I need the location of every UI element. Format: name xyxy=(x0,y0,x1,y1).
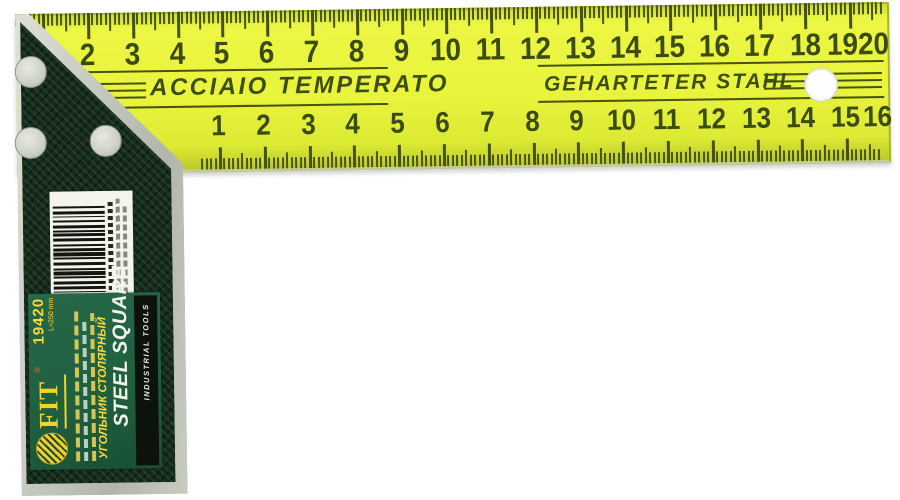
ruler-tick xyxy=(302,10,304,22)
ruler-tick xyxy=(313,157,315,168)
ruler-tick xyxy=(374,9,376,21)
ruler-tick xyxy=(701,5,703,17)
ruler-tick xyxy=(542,154,544,165)
ruler-tick xyxy=(463,8,465,20)
ruler-tick xyxy=(421,150,423,166)
blade-text-german: GEHARTETER STAHL xyxy=(544,69,795,96)
ruler-tick xyxy=(291,157,293,168)
scale-number: 9 xyxy=(393,33,409,69)
ruler-tick xyxy=(226,11,228,23)
ruler-tick xyxy=(510,149,512,165)
barcode xyxy=(53,204,106,297)
ruler-tick xyxy=(799,3,801,15)
ruler-tick xyxy=(304,157,306,168)
ruler-tick xyxy=(573,153,575,164)
ruler-tick xyxy=(280,10,282,22)
ruler-tick xyxy=(644,147,646,163)
ruler-tick xyxy=(257,11,259,23)
ruler-tick xyxy=(506,154,508,165)
ruler-tick xyxy=(358,156,360,167)
ruler-tick xyxy=(380,156,382,167)
ruler-tick xyxy=(324,10,326,22)
ruler-tick xyxy=(629,6,631,18)
ruler-tick xyxy=(647,5,649,23)
ruler-tick xyxy=(651,5,653,17)
ruler-tick xyxy=(763,4,765,16)
ruler-tick xyxy=(407,156,409,167)
sku-number: 19420 xyxy=(30,298,48,345)
ruler-tick xyxy=(181,12,183,24)
ruler-tick xyxy=(857,2,859,14)
ruler-tick xyxy=(607,6,609,18)
ruler-tick xyxy=(262,11,264,23)
scale-number: 11 xyxy=(476,31,506,67)
ruler-tick xyxy=(318,157,320,168)
ruler-tick xyxy=(436,8,438,20)
ruler-tick xyxy=(866,2,868,14)
ruler-tick xyxy=(817,3,819,15)
ruler-tick xyxy=(555,149,557,165)
ruler-tick xyxy=(783,150,785,161)
ruler-tick xyxy=(501,154,503,165)
ruler-tick xyxy=(293,10,295,22)
ruler-tick xyxy=(860,149,862,160)
ruler-tick xyxy=(696,5,698,17)
ruler-tick xyxy=(840,3,842,15)
ruler-tick xyxy=(868,144,870,160)
ruler-tick xyxy=(810,150,812,161)
steel-square-tool: ACCIAIO TEMPERATO GEHARTETER STAHL 23456… xyxy=(15,2,894,496)
ruler-tick xyxy=(248,11,250,23)
ruler-tick xyxy=(683,5,685,17)
ruler-tick xyxy=(595,153,597,164)
ruler-tick xyxy=(819,150,821,161)
product-name-english: STEEL SQUARE xyxy=(108,265,133,427)
ruler-tick xyxy=(508,7,510,19)
ruler-tick xyxy=(295,157,297,168)
ruler-tick xyxy=(719,4,721,16)
ruler-tick xyxy=(743,151,745,162)
ruler-tick xyxy=(450,8,452,20)
ruler-tick xyxy=(239,11,241,23)
ruler-tick xyxy=(564,153,566,164)
scale-number: 9 xyxy=(569,105,584,138)
ruler-tick xyxy=(833,150,835,161)
ruler-tick xyxy=(703,152,705,163)
ruler-tick xyxy=(342,10,344,22)
ruler-tick xyxy=(667,141,670,163)
ruler-tick xyxy=(862,2,864,14)
label-fine-print xyxy=(74,311,80,461)
scale-number: 12 xyxy=(520,31,552,67)
ruler-tick xyxy=(389,156,391,167)
ruler-tick xyxy=(499,7,501,19)
ruler-tick xyxy=(822,3,824,15)
ruler-tick xyxy=(351,9,353,21)
scale-number: 15 xyxy=(654,29,686,65)
ruler-tick xyxy=(434,155,436,166)
ruler-tick xyxy=(568,153,570,164)
ruler-tick xyxy=(721,151,723,162)
ruler-tick xyxy=(835,3,837,15)
ruler-tick xyxy=(228,158,230,169)
ruler-tick xyxy=(875,2,877,14)
ruler-tick xyxy=(678,5,680,17)
ruler-tick xyxy=(566,6,568,18)
ruler-tick xyxy=(356,9,359,35)
ruler-tick xyxy=(481,8,483,20)
ruler-tick xyxy=(362,156,364,167)
ruler-tick xyxy=(416,156,418,167)
ruler-tick xyxy=(842,150,844,161)
ruler-tick xyxy=(824,145,826,161)
scale-number: 5 xyxy=(214,35,230,71)
ruler-tick xyxy=(479,155,481,166)
ruler-tick xyxy=(725,151,727,162)
scale-number: 7 xyxy=(480,106,495,139)
ruler-tick xyxy=(781,3,783,21)
scale-number: 4 xyxy=(345,108,360,141)
ruler-tick xyxy=(524,154,526,165)
ruler-tick xyxy=(553,7,555,19)
ruler-tick xyxy=(414,9,416,21)
ruler-tick xyxy=(443,144,446,166)
ruler-tick xyxy=(745,4,747,16)
ruler-tick xyxy=(250,158,252,169)
blade-text-italian: ACCIAIO TEMPERATO xyxy=(150,70,449,102)
ruler-tick xyxy=(636,152,638,163)
ruler-tick xyxy=(235,11,237,23)
brand-name: FIT xyxy=(33,381,64,429)
ruler-tick xyxy=(649,152,651,163)
label-fine-print xyxy=(82,321,88,461)
ruler-tick xyxy=(631,153,633,164)
ruler-tick xyxy=(611,6,613,18)
scale-number: 7 xyxy=(304,34,320,70)
ruler-tick xyxy=(271,11,273,23)
ruler-tick xyxy=(613,153,615,164)
ruler-tick xyxy=(855,149,857,160)
ruler-tick xyxy=(237,158,239,169)
ruler-tick xyxy=(418,8,420,20)
ruler-tick xyxy=(642,5,644,17)
ruler-tick xyxy=(230,11,232,23)
ruler-tick xyxy=(828,150,830,161)
ruler-tick xyxy=(768,4,770,16)
ruler-tick xyxy=(329,10,331,22)
scale-number: 10 xyxy=(430,32,462,68)
ruler-tick xyxy=(412,156,414,167)
ruler-tick xyxy=(201,159,203,170)
ruler-tick xyxy=(705,4,707,16)
ruler-tick xyxy=(777,3,779,15)
ruler-tick xyxy=(320,10,322,22)
brand-underline xyxy=(64,374,67,428)
fit-logo-icon xyxy=(36,432,68,464)
ruler-tick xyxy=(710,4,712,16)
ruler-tick xyxy=(748,151,750,162)
ruler-tick xyxy=(409,9,411,21)
ruler-tick xyxy=(438,155,440,166)
ruler-tick xyxy=(609,153,611,164)
scale-number: 12 xyxy=(697,103,726,136)
ruler-tick xyxy=(221,11,224,37)
ruler-tick xyxy=(338,10,340,22)
scale-number: 16 xyxy=(699,28,731,64)
ruler-tick xyxy=(403,156,405,167)
ruler-tick xyxy=(223,158,225,169)
ruler-tick xyxy=(452,155,454,166)
scale-number: 8 xyxy=(525,106,540,139)
ruler-tick xyxy=(232,158,234,169)
ruler-tick xyxy=(327,157,329,168)
ruler-tick xyxy=(210,158,212,169)
ruler-tick xyxy=(815,150,817,161)
ruler-tick xyxy=(284,10,286,22)
ruler-tick xyxy=(620,6,622,18)
ruler-tick xyxy=(734,146,736,162)
ruler-tick xyxy=(736,4,738,22)
ruler-tick xyxy=(559,154,561,165)
ruler-tick xyxy=(259,158,261,169)
ruler-tick xyxy=(732,4,734,16)
ruler-tick xyxy=(871,2,873,20)
ruler-tick xyxy=(539,7,541,19)
ruler-tick xyxy=(640,152,642,163)
ruler-tick xyxy=(741,4,743,16)
ruler-tick xyxy=(846,139,849,161)
handle: FIT ® 19420 L=250 mm УГОЛЬНИК СТОЛЯРНЫЙ … xyxy=(15,12,188,496)
ruler-tick xyxy=(371,156,373,167)
ruler-tick xyxy=(544,7,546,19)
ruler-tick xyxy=(770,151,772,162)
ruler-tick xyxy=(873,149,875,160)
ruler-tick xyxy=(665,5,667,17)
scale-number: 19 xyxy=(827,26,859,62)
ruler-tick xyxy=(185,12,187,24)
ruler-tick xyxy=(472,8,474,20)
ruler-tick xyxy=(349,156,351,167)
ruler-tick xyxy=(392,9,394,21)
ruler-tick xyxy=(694,152,696,163)
ruler-tick xyxy=(315,10,317,22)
ruler-tick xyxy=(427,8,429,20)
ruler-tick xyxy=(432,8,434,20)
product-photo: ACCIAIO TEMPERATO GEHARTETER STAHL 23456… xyxy=(0,0,900,500)
ruler-tick xyxy=(656,5,658,17)
ruler-tick xyxy=(532,143,535,165)
ruler-tick xyxy=(521,7,523,19)
ruler-tick xyxy=(680,152,682,163)
ruler-tick xyxy=(714,4,717,30)
ruler-tick xyxy=(477,8,479,20)
ruler-tick xyxy=(474,155,476,166)
ruler-tick xyxy=(219,147,222,169)
ruler-tick xyxy=(376,151,378,167)
ruler-tick xyxy=(716,151,718,162)
ruler-tick xyxy=(685,152,687,163)
ruler-tick xyxy=(586,153,588,164)
ruler-tick xyxy=(396,9,398,21)
ruler-tick xyxy=(792,150,794,161)
ruler-tick xyxy=(752,151,754,162)
ruler-tick xyxy=(289,10,291,28)
ruler-tick xyxy=(660,5,662,17)
ruler-tick xyxy=(562,6,564,18)
ruler-tick xyxy=(253,11,255,23)
ruler-tick xyxy=(837,150,839,161)
ruler-tick xyxy=(425,155,427,166)
ruler-tick xyxy=(530,7,532,19)
scale-number: 6 xyxy=(435,107,450,140)
ruler-tick xyxy=(360,9,362,21)
ruler-tick xyxy=(217,11,219,23)
ruler-tick xyxy=(300,157,302,168)
ruler-tick xyxy=(848,2,851,28)
scale-number: 11 xyxy=(652,104,680,137)
ruler-tick xyxy=(266,11,269,37)
ruler-tick xyxy=(461,155,463,166)
scale-number: 14 xyxy=(609,29,641,65)
scale-number: 5 xyxy=(390,108,405,141)
ruler-tick xyxy=(486,8,488,20)
ruler-tick xyxy=(537,154,539,165)
ruler-tick xyxy=(335,157,337,168)
ruler-tick xyxy=(468,8,470,26)
scale-number: 13 xyxy=(565,30,597,66)
ruler-tick xyxy=(638,5,640,17)
ruler-tick xyxy=(264,147,267,169)
ruler-tick xyxy=(535,7,538,33)
ruler-tick xyxy=(604,153,606,164)
ruler-tick xyxy=(723,4,725,16)
ruler-tick xyxy=(282,157,284,168)
ruler-tick xyxy=(322,157,324,168)
scale-number: 10 xyxy=(607,104,636,137)
ruler-tick xyxy=(687,5,689,17)
ruler-tick xyxy=(383,9,385,21)
ruler-tick xyxy=(519,154,521,165)
ruler-tick xyxy=(654,152,656,163)
ruler-tick xyxy=(430,155,432,166)
scale-number: 8 xyxy=(348,33,364,69)
ruler-tick xyxy=(797,150,799,161)
ruler-tick xyxy=(378,9,380,27)
ruler-tick xyxy=(241,153,243,169)
ruler-tick xyxy=(692,5,694,23)
size-note: L=250 mm xyxy=(48,298,55,331)
ruler-tick xyxy=(203,11,205,23)
ruler-tick xyxy=(488,144,491,166)
ruler-tick xyxy=(515,154,517,165)
black-bar-text: INDUSTRIAL TOOLS xyxy=(134,303,158,400)
ruler-tick xyxy=(398,145,401,167)
ruler-tick xyxy=(593,6,595,18)
ruler-tick xyxy=(804,3,807,29)
ruler-tick xyxy=(795,3,797,15)
ruler-tick xyxy=(765,151,767,162)
ruler-tick xyxy=(750,4,752,16)
ruler-tick xyxy=(331,152,333,168)
ruler-tick xyxy=(340,157,342,168)
ruler-tick xyxy=(864,149,866,160)
ruler-tick xyxy=(504,7,506,19)
ruler-tick xyxy=(627,153,629,164)
ruler-tick xyxy=(273,158,275,169)
product-name-russian: УГОЛЬНИК СТОЛЯРНЫЙ xyxy=(96,317,110,459)
ruler-tick xyxy=(728,4,730,16)
ruler-tick xyxy=(844,3,846,15)
ruler-tick xyxy=(712,140,715,162)
ruler-tick xyxy=(584,6,586,18)
ruler-tick xyxy=(483,155,485,166)
label-fine-print xyxy=(90,313,96,461)
ruler-tick xyxy=(190,12,192,24)
ruler-tick xyxy=(779,145,781,161)
ruler-tick xyxy=(255,158,257,169)
ruler-tick xyxy=(344,157,346,168)
ruler-tick xyxy=(311,10,314,36)
ruler-tick xyxy=(215,158,217,169)
ruler-tick xyxy=(546,154,548,165)
ruler-tick xyxy=(441,8,443,20)
ruler-tick xyxy=(826,3,828,21)
ruler-tick xyxy=(575,6,577,18)
ruler-tick xyxy=(580,6,583,32)
ruler-tick xyxy=(445,8,448,34)
ruler-tick xyxy=(492,154,494,165)
ruler-tick xyxy=(801,139,804,161)
scale-number: 1 xyxy=(211,110,226,143)
ruler-tick xyxy=(756,140,759,162)
scale-number: 16 xyxy=(863,101,892,134)
ruler-tick xyxy=(669,5,672,31)
scale-number: 14 xyxy=(786,102,815,135)
ruler-tick xyxy=(353,145,356,167)
scale-number: 6 xyxy=(259,35,275,71)
scale-number: 18 xyxy=(790,27,822,63)
ruler-tick xyxy=(465,150,467,166)
ruler-tick xyxy=(582,153,584,164)
ruler-tick xyxy=(658,152,660,163)
ruler-tick xyxy=(571,6,573,18)
ruler-tick xyxy=(786,3,788,15)
ruler-tick xyxy=(306,10,308,22)
ruler-tick xyxy=(548,7,550,19)
ruler-tick xyxy=(730,151,732,162)
ruler-tick xyxy=(557,7,559,25)
ruler-tick xyxy=(813,3,815,15)
ruler-tick xyxy=(774,151,776,162)
ruler-tick xyxy=(674,5,676,17)
ruler-tick xyxy=(333,10,335,28)
ruler-tick xyxy=(676,152,678,163)
ruler-tick xyxy=(277,157,279,168)
ruler-tick xyxy=(589,6,591,18)
ruler-tick xyxy=(394,156,396,167)
ruler-tick xyxy=(212,11,214,23)
ruler-tick xyxy=(275,10,277,22)
scale-number: 20 xyxy=(858,26,890,62)
ruler-tick xyxy=(244,11,246,29)
ruler-tick xyxy=(526,7,528,19)
ruler-tick xyxy=(622,142,625,164)
ruler-tick xyxy=(454,8,456,20)
ruler-tick xyxy=(806,150,808,161)
ruler-tick xyxy=(739,151,741,162)
ruler-tick xyxy=(513,7,515,25)
ruler-tick xyxy=(367,156,369,167)
